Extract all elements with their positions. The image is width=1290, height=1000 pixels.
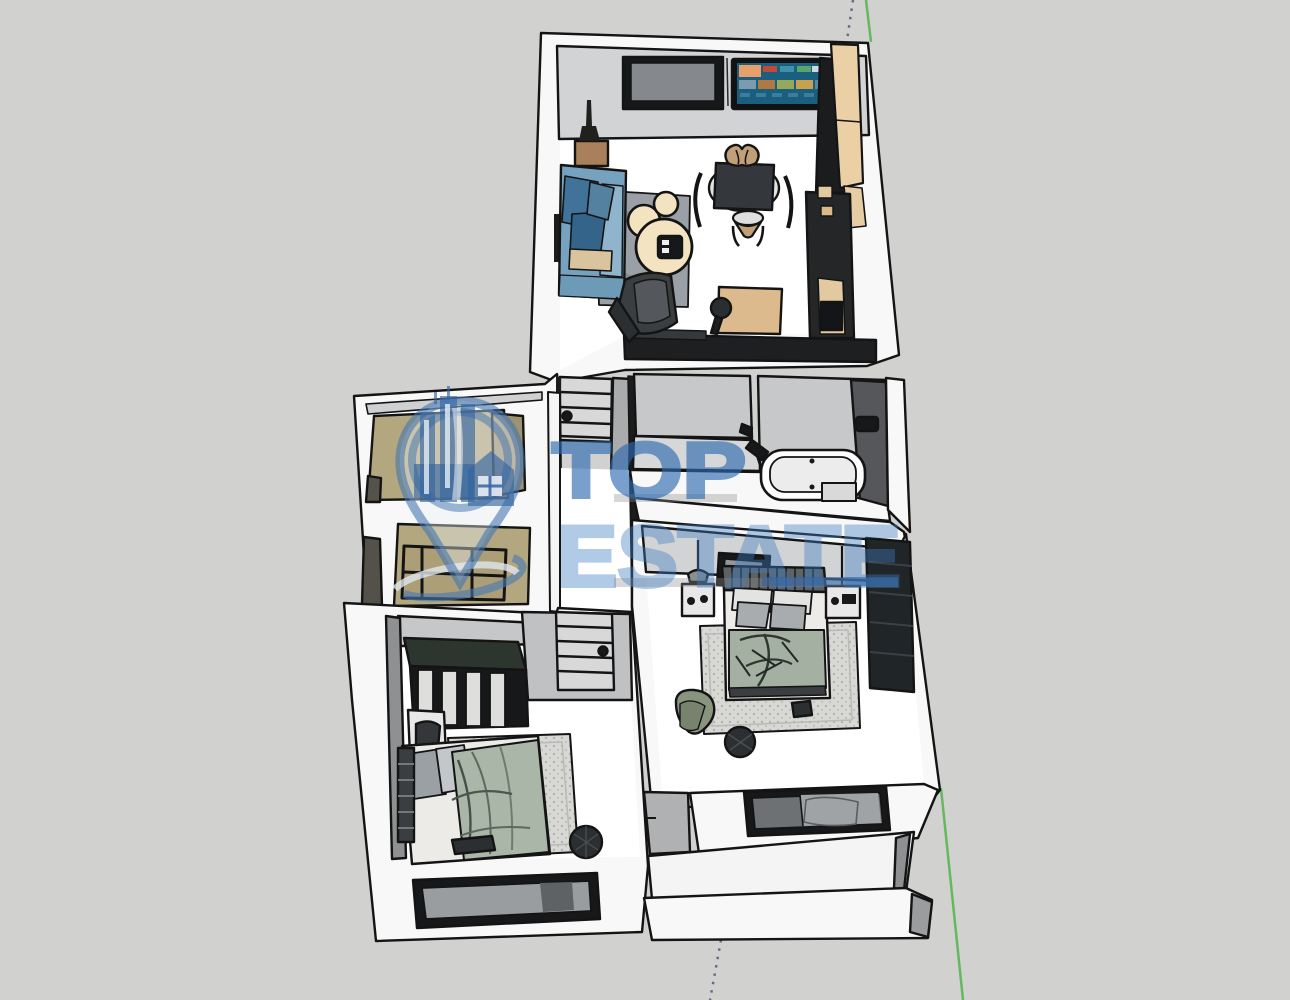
svg-text:ESTATE: ESTATE [557,509,901,605]
svg-text:TOP: TOP [552,426,746,514]
